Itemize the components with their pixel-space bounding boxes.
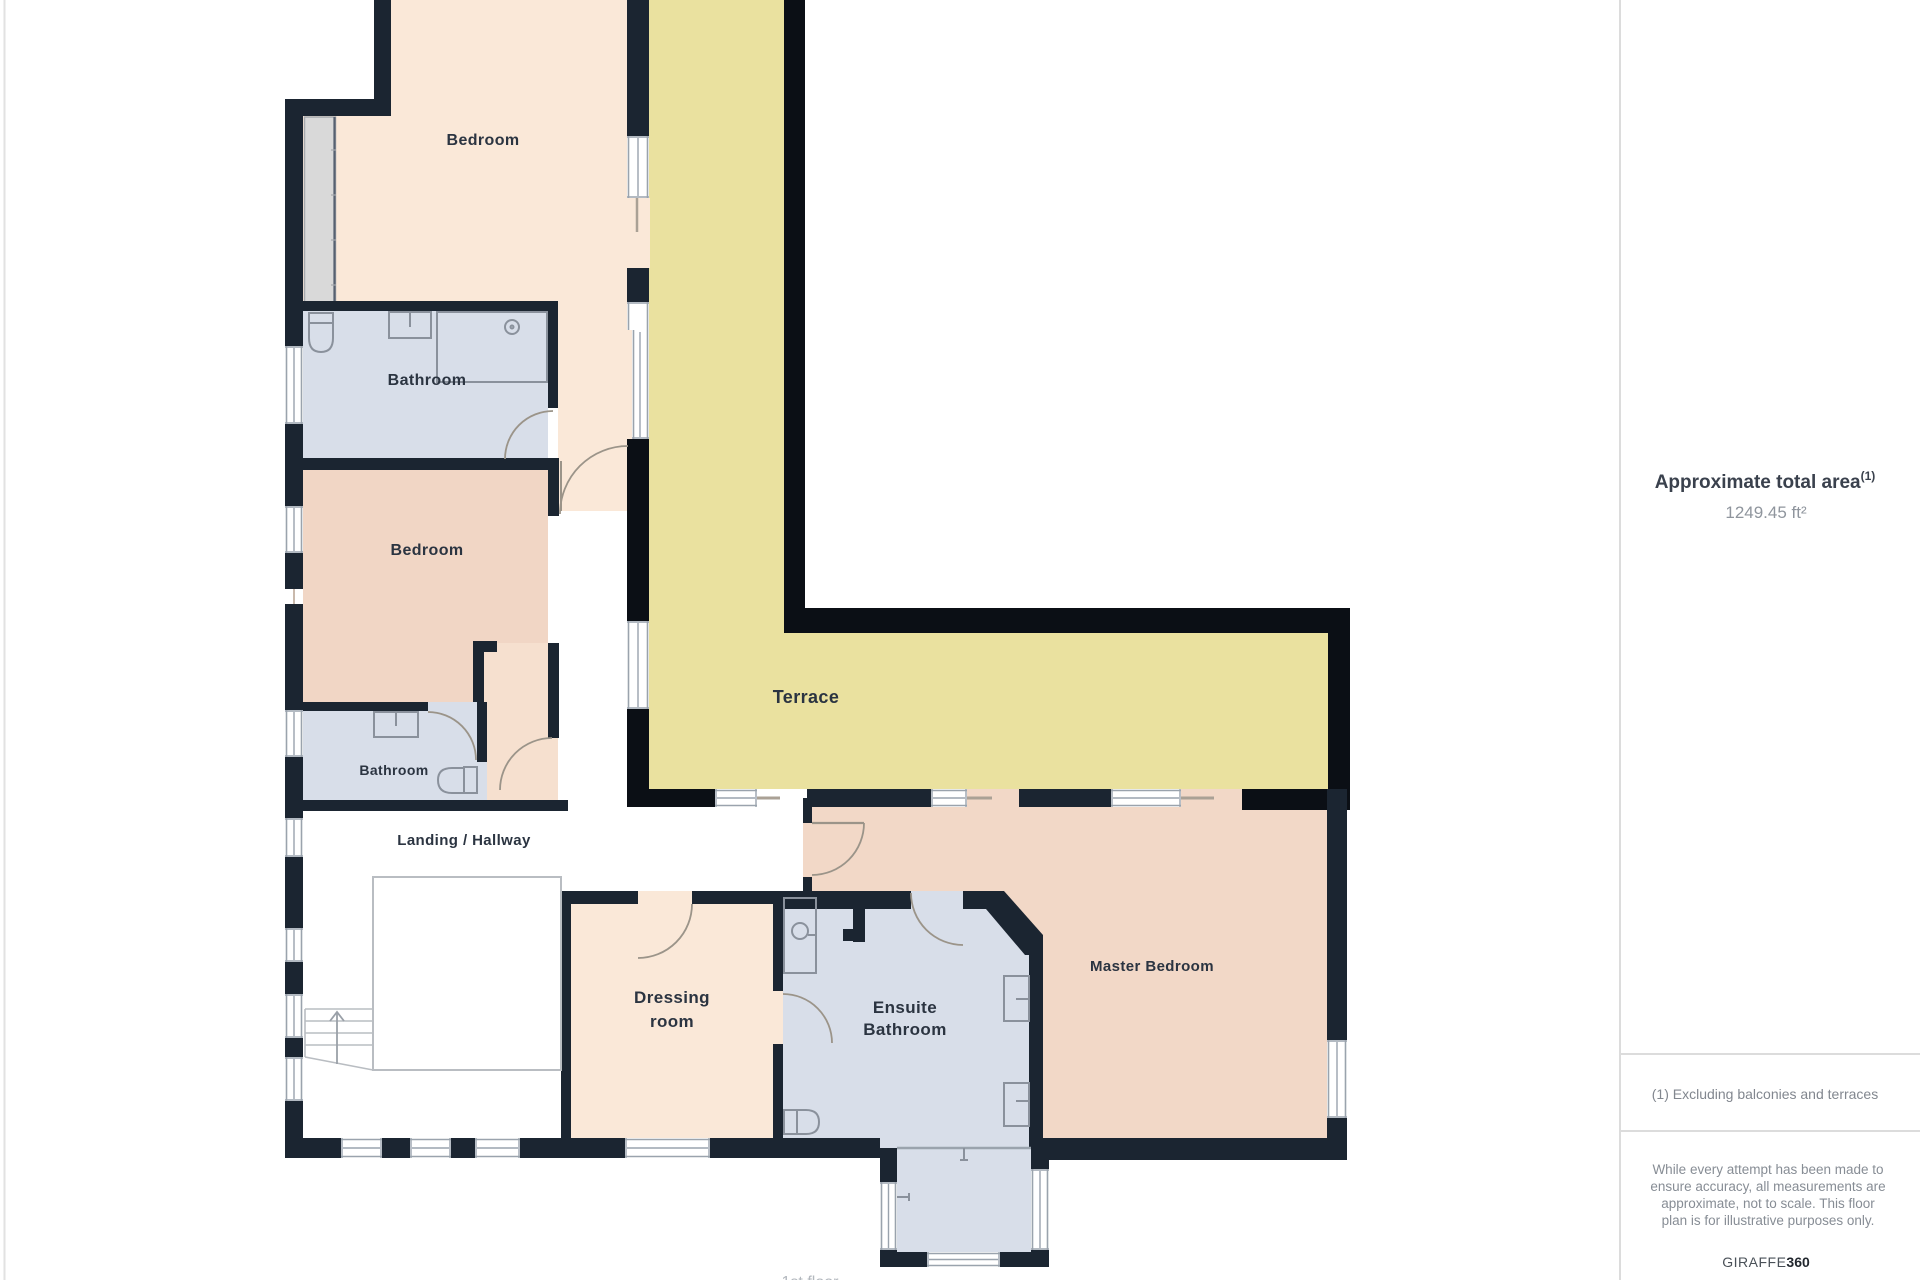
svg-text:Terrace: Terrace bbox=[773, 687, 840, 707]
svg-text:plan is for illustrative purpo: plan is for illustrative purposes only. bbox=[1662, 1213, 1875, 1228]
svg-text:Master Bedroom: Master Bedroom bbox=[1090, 958, 1214, 975]
svg-text:Landing / Hallway: Landing / Hallway bbox=[397, 832, 531, 849]
svg-text:room: room bbox=[650, 1012, 694, 1031]
svg-text:Bathroom: Bathroom bbox=[863, 1020, 946, 1039]
svg-text:Bedroom: Bedroom bbox=[446, 132, 519, 149]
svg-text:(1) Excluding balconies and te: (1) Excluding balconies and terraces bbox=[1652, 1086, 1878, 1102]
svg-text:GIRAFFE360: GIRAFFE360 bbox=[1722, 1254, 1810, 1270]
svg-text:Dressing: Dressing bbox=[634, 988, 710, 1007]
svg-text:Bathroom: Bathroom bbox=[359, 762, 428, 778]
svg-text:While every attempt has been m: While every attempt has been made to bbox=[1652, 1162, 1883, 1177]
svg-text:Ensuite: Ensuite bbox=[873, 998, 937, 1017]
svg-text:Approximate total area(1): Approximate total area(1) bbox=[1655, 469, 1876, 493]
svg-text:1249.45 ft²: 1249.45 ft² bbox=[1725, 503, 1807, 522]
svg-text:ensure accuracy, all measureme: ensure accuracy, all measurements are bbox=[1650, 1179, 1885, 1194]
svg-text:Bedroom: Bedroom bbox=[390, 542, 463, 559]
svg-text:Bathroom: Bathroom bbox=[388, 372, 467, 389]
svg-text:approximate, not to scale. Thi: approximate, not to scale. This floor bbox=[1661, 1196, 1875, 1211]
svg-text:1st floor: 1st floor bbox=[782, 1274, 840, 1280]
